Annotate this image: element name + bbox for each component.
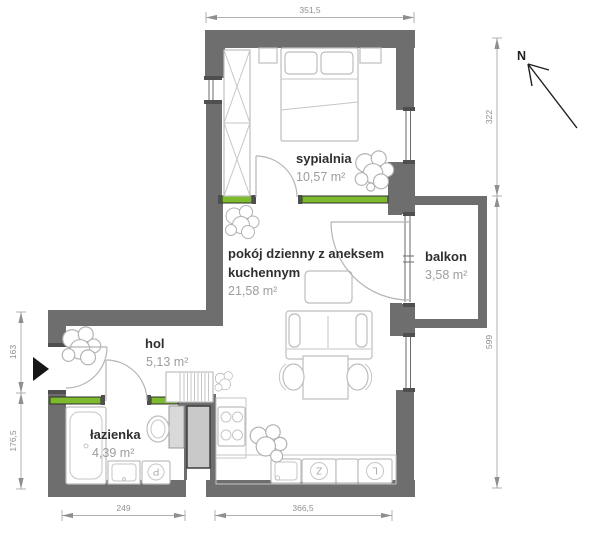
north-arrow-icon: N (517, 49, 577, 128)
dim-bottom-left: 249 (116, 503, 130, 513)
bathroom-fixtures: P (66, 406, 184, 484)
room-name-pokoj-line1: pokój dzienny z aneksem (228, 246, 384, 261)
bedroom-window (403, 107, 415, 164)
entrance-arrow-icon (33, 357, 49, 381)
dim-right-upper: 322 (484, 110, 494, 124)
nightstand-left (259, 48, 277, 63)
living-furniture (279, 271, 372, 399)
room-name-balkon: balkon (425, 249, 467, 264)
north-label: N (517, 49, 526, 63)
toilet (147, 406, 184, 448)
wall-bedroom-left-lower (206, 102, 222, 196)
wall-living-left (206, 196, 223, 326)
wall-bedroom-left-upper (205, 48, 225, 78)
utility-shaft (187, 406, 210, 468)
dining-table (303, 356, 348, 399)
room-area-sypialnia: 10,57 m² (296, 170, 345, 184)
room-area-lazienka: 4,39 m² (92, 446, 134, 460)
plant-icon (250, 425, 287, 462)
room-name-sypialnia: sypialnia (296, 151, 352, 166)
dim-left-lower: 176,5 (8, 430, 18, 452)
wall-top (205, 30, 415, 48)
bathroom-door (106, 360, 147, 401)
chair-right (347, 364, 372, 390)
living-window (403, 333, 415, 392)
hall-wardrobe (166, 372, 213, 402)
dim-top: 351,5 (299, 5, 321, 15)
room-area-hol: 5,13 m² (146, 355, 188, 369)
plant-icon (62, 327, 101, 365)
wardrobe-bedroom (224, 50, 250, 196)
nightstand-right (360, 48, 381, 63)
room-sypialnia: sypialnia 10,57 m² (296, 151, 352, 184)
bedroom-door (256, 156, 297, 197)
chair-left (279, 364, 304, 390)
bathroom-sink (108, 461, 140, 484)
green-wall-bedroom-right (302, 196, 388, 203)
washing-machine: P (142, 461, 170, 484)
wall-right-upper (396, 30, 414, 110)
kitchen-cabinet (336, 459, 358, 483)
door-jamb (48, 343, 66, 347)
dim-bottom-right: 366,5 (292, 503, 314, 513)
dishwasher-label: Z (316, 465, 322, 476)
wall-hall-top (48, 310, 223, 326)
dim-left-upper: 163 (8, 345, 18, 359)
room-name-hol: hol (145, 336, 165, 351)
door-jamb (218, 195, 222, 204)
plant-icon (226, 206, 260, 239)
floor-plan-svg: Z L P (0, 0, 600, 534)
kitchen-furniture: Z L (216, 398, 396, 484)
plant-icon (215, 372, 233, 392)
green-wall-bedroom-left (222, 196, 252, 203)
balcony-wall-right (478, 196, 487, 328)
room-name-lazienka: łazienka (90, 427, 141, 442)
floor-plan: Z L P (0, 0, 600, 534)
door-jamb (298, 195, 302, 204)
dim-right-lower: 599 (484, 335, 494, 349)
dishwasher: Z (302, 459, 336, 483)
pillow (285, 52, 317, 74)
wall-right-block-b (390, 303, 415, 336)
bedroom-recess-window (204, 76, 222, 104)
kitchen-sink (271, 459, 301, 483)
cooktop (218, 407, 245, 446)
wall-kitchen-divider (210, 404, 216, 480)
green-wall-bathroom-left (50, 397, 101, 404)
coffee-table (305, 271, 352, 303)
room-balkon: balkon 3,58 m² (425, 249, 467, 282)
washer-label: P (152, 466, 159, 477)
room-area-balkon: 3,58 m² (425, 268, 467, 282)
fridge-label: L (372, 465, 378, 476)
balcony-wall-bottom (413, 319, 487, 328)
door-jamb (101, 395, 105, 405)
balcony-wall-top (413, 196, 487, 205)
room-name-pokoj-line2: kuchennym (228, 265, 300, 280)
fridge: L (358, 459, 392, 483)
room-area-pokoj: 21,58 m² (228, 284, 277, 298)
pillow (321, 52, 353, 74)
balcony-door-window (402, 212, 415, 307)
sofa (286, 311, 372, 359)
door-jamb (48, 390, 66, 394)
room-hol: hol 5,13 m² (145, 336, 188, 369)
door-jamb (147, 395, 151, 405)
plant-icon (355, 151, 394, 191)
